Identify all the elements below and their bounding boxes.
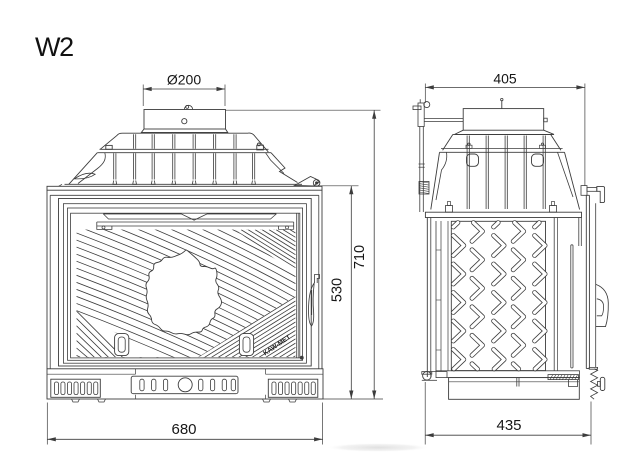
svg-text:405: 405	[493, 70, 517, 86]
svg-text:710: 710	[352, 245, 368, 269]
svg-text:530: 530	[330, 278, 346, 302]
svg-text:Ø200: Ø200	[167, 71, 201, 87]
svg-text:W2: W2	[35, 32, 73, 62]
svg-text:680: 680	[171, 421, 196, 438]
svg-text:435: 435	[496, 417, 521, 434]
